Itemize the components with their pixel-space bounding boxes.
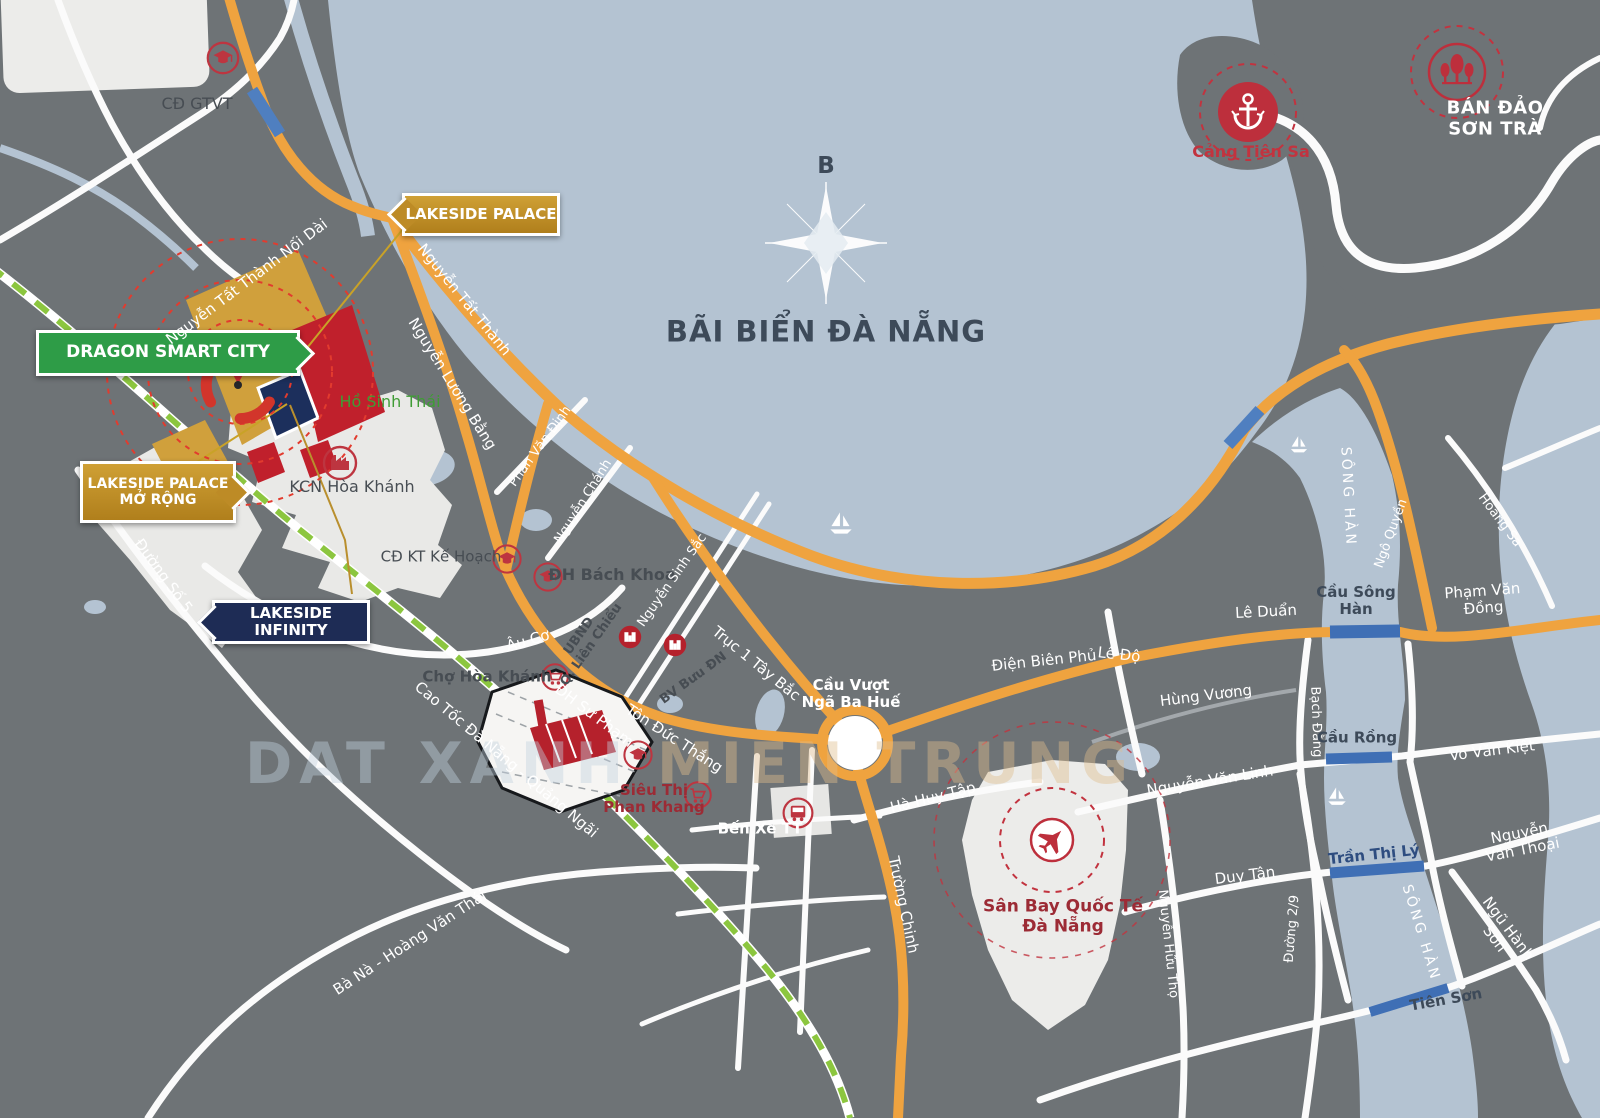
dragon-bridge <box>1326 757 1392 759</box>
nga-ba-hue-roundabout <box>822 710 888 776</box>
song-han-bridge <box>1330 631 1400 632</box>
badge-lakeside-infinity: LAKESIDE INFINITY <box>212 600 370 644</box>
hospital-icon <box>664 634 686 656</box>
map-canvas <box>0 0 1600 1118</box>
badge-dragon-label: DRAGON SMART CITY <box>66 343 270 363</box>
government-icon <box>619 626 641 648</box>
badge-infinity-label: LAKESIDE INFINITY <box>215 605 367 640</box>
danang-project-map: DAT XANH MIEN TRUNG DRAGON SMART CITY LA… <box>0 0 1600 1118</box>
badge-dragon-smart-city: DRAGON SMART CITY <box>36 330 300 376</box>
badge-lakeside-palace-mo-rong: LAKESIDE PALACE MỞ RỘNG <box>80 461 236 523</box>
tran-thi-ly-bridge <box>1330 866 1424 873</box>
badge-lpmr-label: LAKESIDE PALACE MỞ RỘNG <box>88 476 229 508</box>
badge-lakeside-palace: LAKESIDE PALACE <box>402 193 560 236</box>
cd-gtvt-zone <box>0 0 210 94</box>
badge-lp-label: LAKESIDE PALACE <box>406 206 557 223</box>
